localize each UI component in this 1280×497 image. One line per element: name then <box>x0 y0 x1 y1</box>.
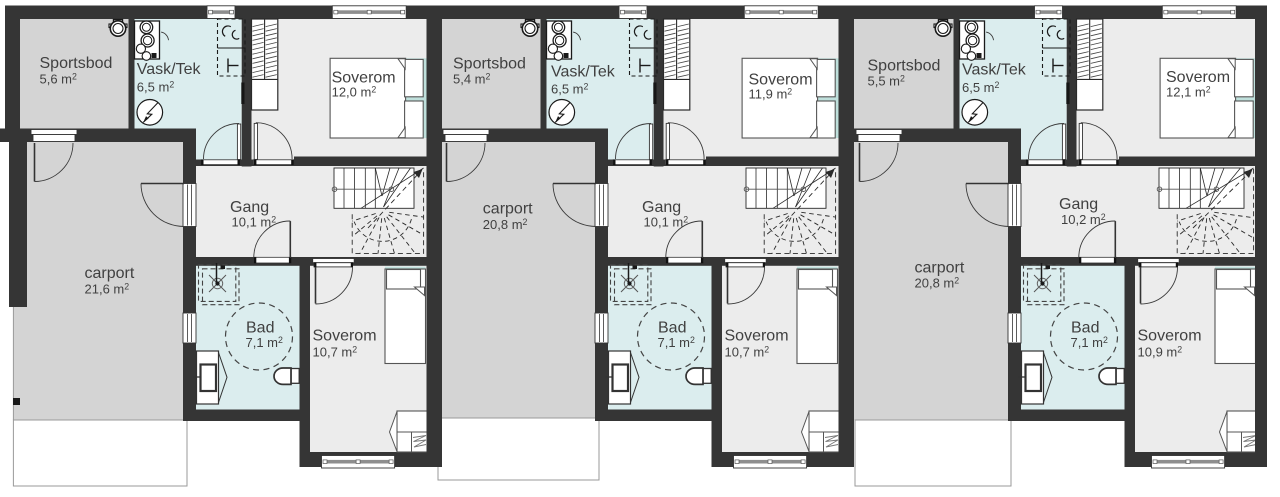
svg-text:Gang: Gang <box>230 199 269 216</box>
svg-text:10,2 m2: 10,2 m2 <box>1061 212 1106 227</box>
svg-text:7,1 m2: 7,1 m2 <box>246 335 284 350</box>
svg-text:Soverom: Soverom <box>313 328 377 345</box>
svg-text:12,0 m2: 12,0 m2 <box>332 85 377 100</box>
svg-text:Sportsbod: Sportsbod <box>453 56 526 73</box>
svg-text:6,5 m2: 6,5 m2 <box>962 80 1000 95</box>
svg-text:Vask/Tek: Vask/Tek <box>137 61 202 78</box>
svg-text:Soverom: Soverom <box>1166 69 1230 86</box>
svg-text:Bad: Bad <box>246 320 274 337</box>
svg-text:Soverom: Soverom <box>725 328 789 345</box>
svg-text:10,7 m2: 10,7 m2 <box>725 345 770 360</box>
svg-text:carport: carport <box>483 201 533 218</box>
svg-text:10,7 m2: 10,7 m2 <box>313 345 358 360</box>
svg-text:Vask/Tek: Vask/Tek <box>962 62 1027 79</box>
svg-text:6,5 m2: 6,5 m2 <box>551 82 589 97</box>
svg-text:5,6 m2: 5,6 m2 <box>40 72 78 87</box>
svg-text:Gang: Gang <box>642 199 681 216</box>
svg-text:Soverom: Soverom <box>1138 328 1202 345</box>
svg-text:Vask/Tek: Vask/Tek <box>551 64 616 81</box>
svg-text:10,9 m2: 10,9 m2 <box>1138 345 1183 360</box>
svg-text:10,1 m2: 10,1 m2 <box>232 215 277 230</box>
svg-text:21,6 m2: 21,6 m2 <box>85 282 130 297</box>
svg-text:Bad: Bad <box>658 320 686 337</box>
svg-text:5,5 m2: 5,5 m2 <box>868 74 906 89</box>
svg-text:10,1 m2: 10,1 m2 <box>644 215 689 230</box>
svg-text:7,1 m2: 7,1 m2 <box>1071 335 1109 350</box>
svg-text:20,8 m2: 20,8 m2 <box>483 217 528 232</box>
svg-text:Bad: Bad <box>1071 320 1099 337</box>
svg-text:Sportsbod: Sportsbod <box>868 58 941 75</box>
svg-text:7,1 m2: 7,1 m2 <box>658 335 696 350</box>
svg-text:5,4 m2: 5,4 m2 <box>453 72 491 87</box>
svg-text:11,9 m2: 11,9 m2 <box>749 87 793 102</box>
svg-text:carport: carport <box>915 260 965 277</box>
svg-text:carport: carport <box>85 265 135 282</box>
svg-text:Sportsbod: Sportsbod <box>40 55 113 72</box>
svg-text:12,1 m2: 12,1 m2 <box>1166 85 1211 100</box>
svg-text:6,5 m2: 6,5 m2 <box>137 80 175 95</box>
svg-text:20,8 m2: 20,8 m2 <box>915 276 960 291</box>
svg-text:Gang: Gang <box>1059 196 1098 213</box>
